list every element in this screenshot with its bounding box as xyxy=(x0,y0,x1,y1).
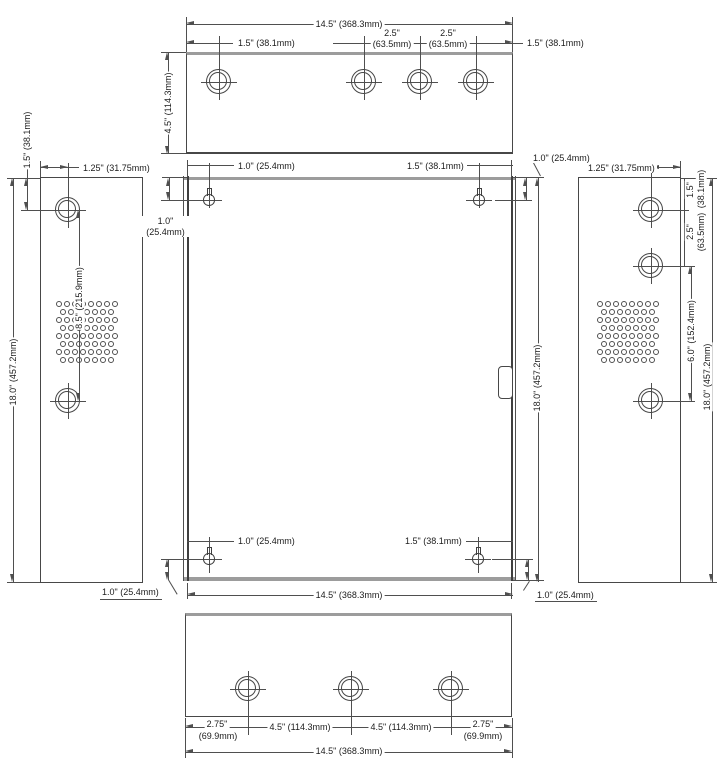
dim-label-right-lower-spacing: 6.0" (152.4mm) xyxy=(685,299,696,363)
perforation-dot xyxy=(108,341,114,347)
knockout-hole xyxy=(351,69,376,94)
arrowhead xyxy=(185,724,193,728)
dim-label-front-br-y: 1.0" (25.4mm) xyxy=(535,590,597,603)
perforation-dot xyxy=(601,357,607,363)
perforation-dot xyxy=(629,333,635,339)
door-handle xyxy=(498,366,513,399)
dim-label-bottom-width: 14.5" (368.3mm) xyxy=(314,746,385,757)
arrowhead xyxy=(504,749,512,753)
arrowhead xyxy=(24,202,28,210)
perforation-dot xyxy=(597,333,603,339)
perforation-dot xyxy=(637,317,643,323)
arrowhead xyxy=(504,724,512,728)
perforation-dot xyxy=(621,317,627,323)
extension-line xyxy=(187,160,188,177)
leader-line xyxy=(533,163,541,177)
perforation-dot xyxy=(633,341,639,347)
dimension-line xyxy=(187,165,234,166)
extension-line xyxy=(187,583,188,599)
perforation-dot xyxy=(649,325,655,331)
dim-label-top-depth: 4.5" (114.3mm) xyxy=(162,71,173,134)
perforation-dot xyxy=(613,301,619,307)
perforation-dot xyxy=(633,309,639,315)
extension-line xyxy=(511,160,512,177)
perforation-dot xyxy=(60,341,66,347)
dim-label-right-spacing-mm: (63.5mm) xyxy=(695,212,706,253)
perforation-dot xyxy=(104,349,110,355)
arrowhead xyxy=(523,192,527,200)
front-top-flange xyxy=(183,177,516,181)
perforation-dot xyxy=(104,301,110,307)
perforation-dot xyxy=(633,357,639,363)
arrowhead xyxy=(505,40,513,44)
knockout-hole xyxy=(206,69,231,94)
dim-label-right-hole-offset: 1.25" (31.75mm) xyxy=(586,163,657,174)
perforation-dot xyxy=(633,325,639,331)
perforation-dot xyxy=(88,301,94,307)
arrowhead xyxy=(24,178,28,186)
perforation-dot xyxy=(645,317,651,323)
perforation-dot xyxy=(56,301,62,307)
knockout-hole xyxy=(463,69,488,94)
perforation-dot xyxy=(84,357,90,363)
perforation-dot xyxy=(605,349,611,355)
perforation-dot xyxy=(112,317,118,323)
perforation-dot xyxy=(613,317,619,323)
dim-label-left-hole-offset: 1.25" (31.75mm) xyxy=(81,163,152,174)
perforation-grid xyxy=(597,301,661,365)
perforation-dot xyxy=(625,325,631,331)
dim-label-front-bl-y: 1.0" (25.4mm) xyxy=(100,587,162,600)
keyhole-slot-circle xyxy=(203,194,215,206)
perforation-dot xyxy=(609,341,615,347)
knockout-hole xyxy=(638,388,663,413)
perforation-dot xyxy=(625,341,631,347)
perforation-dot xyxy=(56,349,62,355)
arrowhead xyxy=(709,574,713,582)
perforation-dot xyxy=(96,349,102,355)
perforation-dot xyxy=(649,341,655,347)
perforation-dot xyxy=(112,349,118,355)
perforation-dot xyxy=(645,301,651,307)
knockout-hole-inner xyxy=(641,200,659,218)
front-outer-edge-right xyxy=(515,176,516,581)
perforation-dot xyxy=(64,349,70,355)
perforation-dot xyxy=(72,349,78,355)
perforation-dot xyxy=(104,317,110,323)
dim-label-top-spacing2-mm: (63.5mm) xyxy=(427,39,470,50)
perforation-dot xyxy=(629,301,635,307)
perforation-dot xyxy=(88,317,94,323)
knockout-hole xyxy=(438,676,463,701)
arrowhead xyxy=(10,574,14,582)
perforation-dot xyxy=(617,341,623,347)
arrowhead xyxy=(76,210,80,218)
dimension-line xyxy=(185,727,512,728)
dim-label-bottom-span2: 4.5" (114.3mm) xyxy=(368,722,433,733)
dim-label-front-tl-y-mm: (25.4mm) xyxy=(142,227,189,238)
arrowhead xyxy=(525,559,529,567)
perforation-dot xyxy=(617,309,623,315)
arrowhead xyxy=(165,559,169,567)
perforation-dot xyxy=(641,309,647,315)
knockout-hole-inner xyxy=(466,72,484,90)
arrowhead xyxy=(60,165,68,169)
perforation-dot xyxy=(601,341,607,347)
perforation-dot xyxy=(60,309,66,315)
perforation-dot xyxy=(605,301,611,307)
knockout-hole xyxy=(338,676,363,701)
dim-label-left-hole-spacing: 8.5" (215.9mm) xyxy=(73,266,84,330)
knockout-hole-inner xyxy=(341,679,359,697)
extension-line xyxy=(511,583,512,599)
perforation-dot xyxy=(609,309,615,315)
arrowhead xyxy=(535,178,539,186)
arrowhead xyxy=(187,592,195,596)
leader-line xyxy=(168,579,178,594)
perforation-dot xyxy=(112,301,118,307)
arrowhead xyxy=(40,165,48,169)
perforation-dot xyxy=(625,309,631,315)
perforation-dot xyxy=(641,341,647,347)
keyhole-slot-circle xyxy=(203,553,215,565)
dim-label-right-top-hole-in: 1.5" xyxy=(684,181,695,199)
arrowhead xyxy=(709,178,713,186)
perforation-dot xyxy=(108,325,114,331)
perforation-dot xyxy=(96,301,102,307)
perforation-dot xyxy=(597,317,603,323)
perforation-dot xyxy=(92,325,98,331)
perforation-dot xyxy=(60,357,66,363)
knockout-hole xyxy=(638,253,663,278)
dim-label-top-spacing1-mm: (63.5mm) xyxy=(371,39,414,50)
tick-mark xyxy=(680,178,689,179)
tick-mark xyxy=(680,266,689,267)
knockout-hole-inner xyxy=(354,72,372,90)
dim-label-front-height: 18.0" (457.2mm) xyxy=(532,344,543,413)
dim-label-bottom-span1: 4.5" (114.3mm) xyxy=(267,722,332,733)
perforation-dot xyxy=(72,333,78,339)
knockout-hole-inner xyxy=(58,200,76,218)
knockout-hole-inner xyxy=(58,391,76,409)
perforation-dot xyxy=(621,301,627,307)
dim-label-front-tl-y: 1.0" (25.4mm) xyxy=(142,216,189,237)
perforation-dot xyxy=(84,309,90,315)
perforation-dot xyxy=(653,301,659,307)
perforation-dot xyxy=(637,349,643,355)
arrowhead xyxy=(523,178,527,186)
left-view-panel xyxy=(40,177,143,583)
perforation-dot xyxy=(84,341,90,347)
perforation-dot xyxy=(637,301,643,307)
perforation-dot xyxy=(621,349,627,355)
perforation-dot xyxy=(92,309,98,315)
extension-line xyxy=(680,161,681,177)
perforation-dot xyxy=(649,357,655,363)
perforation-dot xyxy=(621,333,627,339)
perforation-dot xyxy=(645,349,651,355)
perforation-dot xyxy=(56,317,62,323)
knockout-hole-inner xyxy=(641,391,659,409)
perforation-dot xyxy=(653,333,659,339)
perforation-dot xyxy=(629,349,635,355)
arrowhead xyxy=(166,178,170,186)
perforation-dot xyxy=(88,349,94,355)
top-view-panel xyxy=(186,52,513,154)
dim-label-bottom-left-mm: (69.9mm) xyxy=(197,731,240,742)
perforation-dot xyxy=(637,333,643,339)
perforation-dot xyxy=(108,357,114,363)
perforation-dot xyxy=(96,317,102,323)
perforation-dot xyxy=(80,333,86,339)
perforation-dot xyxy=(601,309,607,315)
perforation-dot xyxy=(84,325,90,331)
perforation-dot xyxy=(64,317,70,323)
perforation-dot xyxy=(613,333,619,339)
perforation-dot xyxy=(80,349,86,355)
arrowhead xyxy=(166,192,170,200)
perforation-dot xyxy=(617,357,623,363)
enclosure-dimensional-drawing: 14.5" (368.3mm) 1.5" (38.1mm) 2.5" (63.5… xyxy=(0,0,728,767)
perforation-dot xyxy=(104,333,110,339)
dim-label-right-top-hole-mm: (38.1mm) xyxy=(695,169,706,210)
perforation-dot xyxy=(60,325,66,331)
keyhole-slot-circle xyxy=(472,553,484,565)
knockout-hole xyxy=(407,69,432,94)
perforation-dot xyxy=(92,357,98,363)
knockout-hole-inner xyxy=(441,679,459,697)
knockout-hole-inner xyxy=(410,72,428,90)
perforation-dot xyxy=(629,317,635,323)
perforation-grid xyxy=(56,301,120,365)
dim-label-left-top-hole: 1.5" (38.1mm) xyxy=(21,111,32,170)
perforation-dot xyxy=(601,325,607,331)
arrowhead xyxy=(505,21,513,25)
perforation-dot xyxy=(64,301,70,307)
dim-label-left-height: 18.0" (457.2mm) xyxy=(7,338,18,407)
perforation-dot xyxy=(64,333,70,339)
knockout-hole xyxy=(235,676,260,701)
dim-label-front-br-x: 1.5" (38.1mm) xyxy=(403,536,464,547)
arrowhead xyxy=(165,572,169,580)
arrowhead xyxy=(525,572,529,580)
perforation-dot xyxy=(108,309,114,315)
arrowhead xyxy=(186,21,194,25)
dim-label-top-right-hole: 1.5" (38.1mm) xyxy=(525,38,586,49)
perforation-dot xyxy=(605,333,611,339)
perforation-dot xyxy=(613,349,619,355)
perforation-dot xyxy=(88,333,94,339)
dim-label-top-width: 14.5" (368.3mm) xyxy=(314,19,385,30)
perforation-dot xyxy=(609,357,615,363)
keyhole-slot-circle xyxy=(473,194,485,206)
dimension-line xyxy=(467,165,513,166)
perforation-dot xyxy=(96,333,102,339)
perforation-dot xyxy=(625,357,631,363)
perforation-dot xyxy=(597,349,603,355)
dim-label-front-tr-x: 1.5" (38.1mm) xyxy=(405,161,466,172)
leader-line xyxy=(523,581,530,591)
dimension-line xyxy=(466,541,513,542)
arrowhead xyxy=(165,52,169,60)
dim-label-bottom-left-in: 2.75" xyxy=(205,719,230,730)
dim-label-front-bl-x: 1.0" (25.4mm) xyxy=(236,536,297,547)
arrowhead xyxy=(673,165,681,169)
perforation-dot xyxy=(100,325,106,331)
arrowhead xyxy=(688,266,692,274)
arrowhead xyxy=(10,178,14,186)
knockout-hole-inner xyxy=(209,72,227,90)
bottom-view-panel xyxy=(185,613,512,717)
perforation-dot xyxy=(68,357,74,363)
perforation-dot xyxy=(605,317,611,323)
perforation-dot xyxy=(645,333,651,339)
perforation-dot xyxy=(609,325,615,331)
arrowhead xyxy=(535,574,539,582)
perforation-dot xyxy=(649,309,655,315)
dim-label-front-width: 14.5" (368.3mm) xyxy=(314,590,385,601)
knockout-hole xyxy=(638,197,663,222)
dim-label-front-tr-y: 1.0" (25.4mm) xyxy=(531,153,592,164)
dim-label-right-height: 18.0" (457.2mm) xyxy=(701,343,712,412)
extension-line xyxy=(513,177,544,178)
tick-mark xyxy=(680,210,689,211)
dimension-line xyxy=(187,541,234,542)
front-bottom-flange xyxy=(183,577,516,581)
arrowhead xyxy=(185,749,193,753)
perforation-dot xyxy=(100,357,106,363)
perforation-dot xyxy=(653,349,659,355)
knockout-hole-inner xyxy=(641,256,659,274)
dim-label-front-tl-y-in: 1.0" xyxy=(142,216,189,227)
dim-label-front-tl-x: 1.0" (25.4mm) xyxy=(236,161,297,172)
arrowhead xyxy=(165,146,169,154)
dim-label-right-spacing-in: 2.5" xyxy=(684,223,695,241)
arrowhead xyxy=(76,393,80,401)
extension-line xyxy=(40,161,41,177)
dim-label-bottom-right-mm: (69.9mm) xyxy=(462,731,505,742)
perforation-dot xyxy=(100,341,106,347)
perforation-dot xyxy=(641,325,647,331)
right-view-panel xyxy=(578,177,681,583)
arrowhead xyxy=(505,592,513,596)
arrowhead xyxy=(186,40,194,44)
dim-label-top-left-hole: 1.5" (38.1mm) xyxy=(236,38,297,49)
dim-label-bottom-right-in: 2.75" xyxy=(471,719,496,730)
knockout-hole-inner xyxy=(238,679,256,697)
perforation-dot xyxy=(68,341,74,347)
dim-label-top-spacing1-in: 2.5" xyxy=(382,28,402,39)
dim-label-top-spacing2-in: 2.5" xyxy=(438,28,458,39)
perforation-dot xyxy=(112,333,118,339)
perforation-dot xyxy=(92,341,98,347)
perforation-dot xyxy=(597,301,603,307)
perforation-dot xyxy=(100,309,106,315)
perforation-dot xyxy=(56,333,62,339)
perforation-dot xyxy=(617,325,623,331)
perforation-dot xyxy=(641,357,647,363)
perforation-dot xyxy=(653,317,659,323)
arrowhead xyxy=(688,393,692,401)
